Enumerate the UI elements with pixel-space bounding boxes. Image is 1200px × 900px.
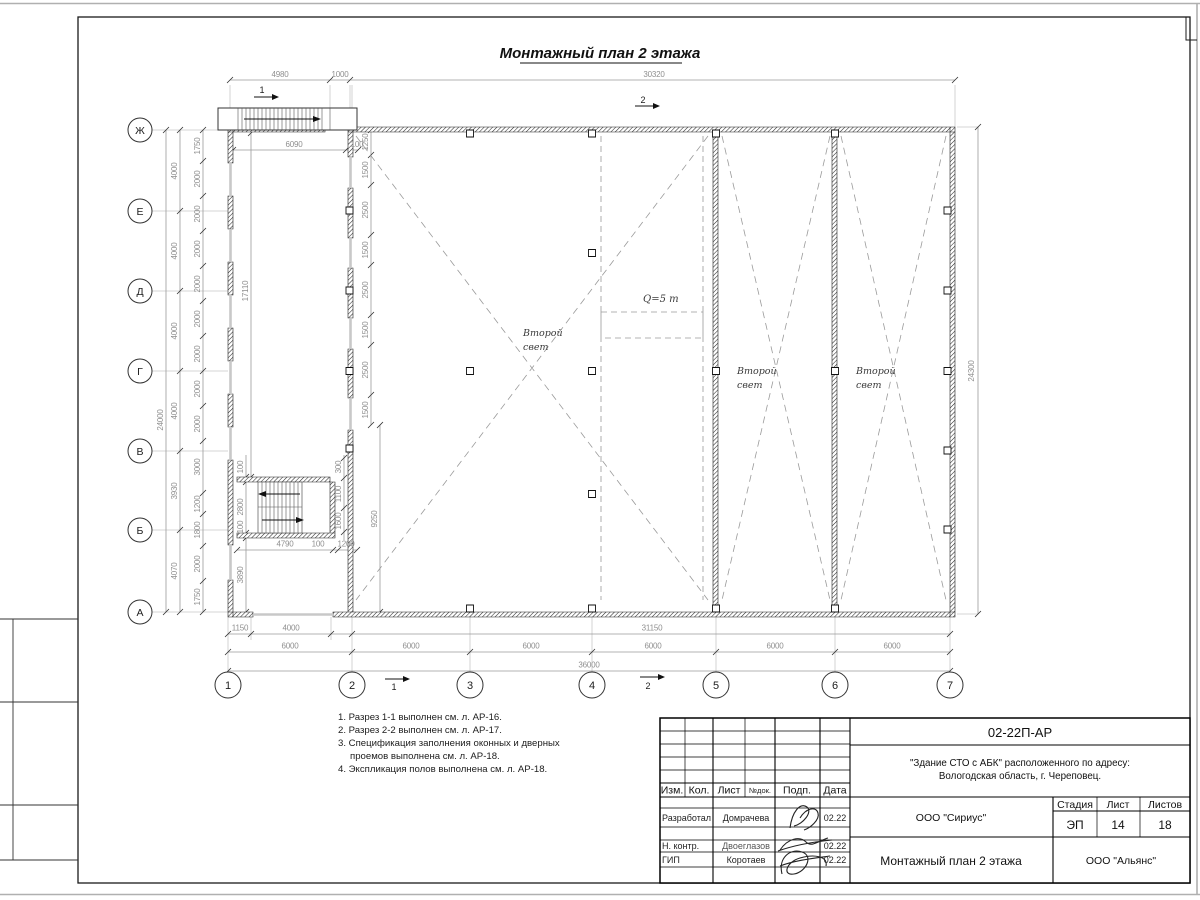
second-light-label: свет bbox=[737, 380, 762, 391]
tb-col-ndok: №док. bbox=[749, 786, 771, 795]
axis-letters: Ж Е Д Г В Б А bbox=[128, 118, 152, 624]
tb-role: ГИП bbox=[662, 855, 680, 865]
crane-runway-dashes bbox=[601, 136, 703, 600]
extension-lines bbox=[152, 85, 978, 672]
axis-letter: Б bbox=[137, 525, 144, 537]
axis-number: 7 bbox=[947, 680, 953, 692]
hall-labels: Второй свет Второй свет Второй свет Q=5 … bbox=[522, 294, 896, 391]
axis-letter: В bbox=[136, 446, 143, 458]
dim-label: 1500 bbox=[361, 241, 370, 259]
second-light-label: Второй bbox=[736, 366, 777, 377]
axis-letter: Ж bbox=[135, 125, 145, 137]
dim-label: 4980 bbox=[272, 70, 290, 79]
dim-label: 2000 bbox=[193, 170, 202, 188]
sheets-total: 18 bbox=[1158, 818, 1172, 832]
dim-label: 300 bbox=[334, 460, 343, 473]
dim-label: 2000 bbox=[193, 205, 202, 223]
dim-label: 2000 bbox=[193, 555, 202, 573]
tb-role: Разработал bbox=[662, 813, 711, 823]
dim-label: 1250 bbox=[361, 133, 370, 151]
dim-label: 1000 bbox=[332, 70, 350, 79]
tb-col-izm: Изм. bbox=[661, 785, 684, 797]
stairwell bbox=[258, 482, 304, 533]
drawing-name: Монтажный план 2 этажа bbox=[880, 854, 1022, 868]
dim-label: 4790 bbox=[277, 540, 295, 549]
axis-number: 2 bbox=[349, 680, 355, 692]
dim-label: 2000 bbox=[193, 345, 202, 363]
notes: 1. Разрез 1-1 выполнен см. л. АР-16. 2. … bbox=[338, 712, 560, 775]
dim-label: 2500 bbox=[361, 281, 370, 299]
tb-person-name: Домрачева bbox=[723, 813, 770, 823]
dim-label: 2000 bbox=[193, 380, 202, 398]
dim-label: 100 bbox=[312, 540, 325, 549]
dim-label: 6090 bbox=[286, 140, 304, 149]
dim-label: 31150 bbox=[642, 624, 663, 633]
dim-label: 36000 bbox=[578, 661, 600, 670]
tb-col-kol: Кол. bbox=[689, 785, 710, 797]
note-line: 3. Спецификация заполнения оконных и две… bbox=[338, 738, 560, 749]
dim-label: 1200 bbox=[193, 495, 202, 513]
owner-org: ООО "Альянс" bbox=[1086, 855, 1156, 867]
dim-label: 3000 bbox=[193, 458, 202, 476]
doc-number: 02-22П-АР bbox=[988, 725, 1052, 740]
tb-col-data: Дата bbox=[823, 785, 846, 797]
dim-label: 100 bbox=[236, 520, 245, 533]
exterior-stair bbox=[218, 108, 357, 130]
dim-label: 6000 bbox=[282, 642, 300, 651]
dim-label: 2500 bbox=[361, 361, 370, 379]
dim-label: 4000 bbox=[170, 162, 179, 180]
second-light-label: Второй bbox=[855, 366, 896, 377]
dim-label: 4000 bbox=[283, 624, 301, 633]
page-title: Монтажный план 2 этажа bbox=[500, 45, 701, 62]
dim-label: 4000 bbox=[170, 322, 179, 340]
crane-capacity-label: Q=5 т bbox=[643, 294, 679, 305]
section-1-bottom-label: 1 bbox=[391, 682, 396, 692]
note-line: проемов выполнена см. л. АР-18. bbox=[350, 751, 500, 762]
title-block: 02-22П-АР "Здание СТО с АБК" расположенн… bbox=[660, 718, 1190, 883]
dim-label: 17110 bbox=[241, 280, 250, 301]
stage-label: Стадия bbox=[1057, 799, 1093, 811]
dim-label: 3930 bbox=[170, 482, 179, 500]
stage-value: ЭП bbox=[1066, 818, 1083, 832]
dim-label: 2000 bbox=[193, 240, 202, 258]
section-1-top-label: 1 bbox=[259, 85, 264, 95]
dim-label: 100 bbox=[236, 460, 245, 473]
dim-label: 1800 bbox=[193, 521, 202, 539]
side-stamp bbox=[0, 619, 78, 860]
dim-label: 1500 bbox=[361, 401, 370, 419]
axis-number: 6 bbox=[832, 680, 838, 692]
drawing-sheet: Монтажный план 2 этажа bbox=[0, 0, 1200, 900]
note-line: 2. Разрез 2-2 выполнен см. л. АР-17. bbox=[338, 725, 502, 736]
second-light-label: Второй bbox=[522, 328, 563, 339]
dim-label: 1500 bbox=[361, 161, 370, 179]
dim-label: 6000 bbox=[884, 642, 902, 651]
note-line: 4. Экспликация полов выполнена см. л. АР… bbox=[338, 764, 547, 775]
second-light-label: свет bbox=[523, 342, 548, 353]
dim-label: 4000 bbox=[170, 242, 179, 260]
dim-label: 2000 bbox=[193, 275, 202, 293]
second-light-label: свет bbox=[856, 380, 881, 391]
section-2-top-label: 2 bbox=[640, 95, 645, 105]
section-marks: 1 2 1 2 bbox=[254, 85, 665, 692]
tb-person-name: Коротаев bbox=[727, 855, 766, 865]
tb-role: Н. контр. bbox=[662, 841, 699, 851]
tb-date: 02.22 bbox=[824, 813, 847, 823]
tb-person-name: Двоеглазов bbox=[722, 841, 770, 851]
section-2-bottom-label: 2 bbox=[645, 681, 650, 691]
dim-label: 1750 bbox=[193, 137, 202, 155]
dim-label: 1600 bbox=[334, 512, 343, 530]
dim-label: 4000 bbox=[170, 402, 179, 420]
dim-label: 2000 bbox=[193, 415, 202, 433]
axis-letter: Д bbox=[136, 286, 143, 298]
axis-number: 4 bbox=[589, 680, 595, 692]
sheets-label: Листов bbox=[1148, 799, 1183, 811]
dim-label: 1750 bbox=[193, 588, 202, 606]
dim-label: 1500 bbox=[361, 321, 370, 339]
dim-label: 6000 bbox=[523, 642, 541, 651]
axis-letter: Г bbox=[137, 366, 143, 378]
object-address-line1: "Здание СТО с АБК" расположенного по адр… bbox=[910, 758, 1130, 769]
dim-label: 9250 bbox=[370, 510, 379, 528]
dim-label: 1200 bbox=[338, 540, 356, 549]
note-line: 1. Разрез 1-1 выполнен см. л. АР-16. bbox=[338, 712, 502, 723]
dim-label: 2500 bbox=[361, 201, 370, 219]
dim-label: 4070 bbox=[170, 562, 179, 580]
dim-label: 6000 bbox=[403, 642, 421, 651]
tb-col-podp: Подп. bbox=[783, 785, 811, 797]
dim-label: 2800 bbox=[236, 498, 245, 516]
tb-col-list: Лист bbox=[718, 785, 741, 797]
sheet-label: Лист bbox=[1107, 799, 1130, 811]
dim-label: 24000 bbox=[156, 409, 165, 431]
dim-label: 6000 bbox=[767, 642, 785, 651]
tb-date: 02.22 bbox=[824, 841, 847, 851]
dim-label: 1150 bbox=[232, 624, 249, 633]
axis-number: 5 bbox=[713, 680, 719, 692]
dim-label: 24300 bbox=[967, 360, 976, 382]
object-address-line2: Вологодская область, г. Череповец. bbox=[939, 771, 1101, 782]
dim-label: 30320 bbox=[643, 70, 665, 79]
dim-label: 1100 bbox=[334, 485, 343, 502]
dim-label: 6000 bbox=[645, 642, 663, 651]
axis-numbers: 1 2 3 4 5 6 7 bbox=[215, 672, 963, 698]
axis-number: 1 bbox=[225, 680, 231, 692]
axis-letter: А bbox=[136, 607, 143, 619]
designer-org: ООО "Сириус" bbox=[916, 812, 987, 824]
sheet-number: 14 bbox=[1111, 818, 1125, 832]
dim-label: 2000 bbox=[193, 310, 202, 328]
dimension-labels-horizontal: 4980 1000 30320 6090 100 4790 100 1200 1… bbox=[232, 70, 901, 670]
dim-label: 3890 bbox=[236, 566, 245, 584]
axis-number: 3 bbox=[467, 680, 473, 692]
axis-letter: Е bbox=[136, 206, 143, 218]
